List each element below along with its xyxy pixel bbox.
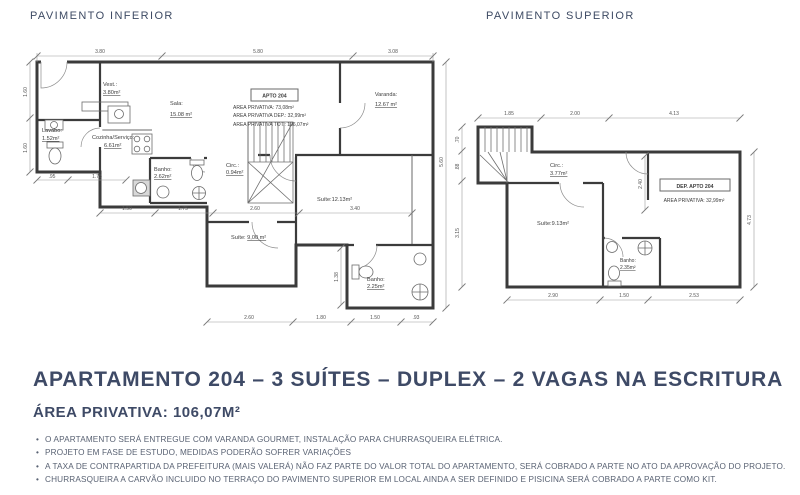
dim-label: .70 (455, 136, 461, 143)
room-label-banho1: Banho: (154, 167, 172, 173)
room-label-suite1: Suíte:12.13m² (317, 197, 352, 203)
room-label-vest: Vest.: (103, 82, 117, 88)
note-item: A TAXA DE CONTRAPARTIDA DA PREFEITURA (M… (36, 460, 786, 473)
room-area-cozinha: 6.61m² (104, 143, 122, 149)
area-privativa-dep-line: AREA PRIVATIVA DEP.: 32,99m² (233, 113, 306, 119)
superior-door-gaps (559, 183, 622, 238)
inferior-door-arcs (41, 62, 377, 269)
room-area-sala: 15.08 m² (170, 112, 192, 118)
dim-label: 1.75 (92, 174, 102, 180)
room-label-lavabo: Lavabo: (42, 128, 62, 134)
dim-label: 5.80 (253, 49, 263, 55)
area-privativa-subtitle: ÁREA PRIVATIVA: 106,07M² (33, 404, 240, 421)
dim-label: 1.50 (370, 315, 380, 321)
inferior-interior-walls (37, 62, 433, 245)
dim-label: 3.40 (350, 206, 360, 212)
floor-plans-drawing: 3.80 5.80 3.08 1.60 1.60 5.60 .95 1.75 (0, 0, 800, 348)
area-privativa-tot-line: AREA PRIVATIVA TOT.: 106,07m² (233, 122, 309, 128)
room-label-cozinha: Cozinha/Serviço: (92, 135, 135, 141)
dep-label: DEP. APTO 204 (676, 184, 713, 190)
banho2-fixtures-icon (352, 253, 428, 300)
kitchen-washer-icon (133, 180, 150, 196)
dim-label: 1.80 (316, 315, 326, 321)
dim-label: 1.50 (122, 206, 132, 212)
room-label-suite2: Suíte: 9,00 m² (231, 235, 266, 241)
dim-label: 2.00 (570, 111, 580, 117)
dim-label: 2.53 (689, 293, 699, 299)
dim-label: .95 (49, 174, 56, 180)
kitchen-stove-icon (132, 134, 152, 154)
superior-room-labels: Circ.: 3.77m² DEP. APTO 204 AREA PRIVATI… (537, 163, 730, 271)
dim-label: 2.90 (548, 293, 558, 299)
floor-plan-superior: 1.85 2.00 4.13 .70 .88 3.15 4.73 (455, 111, 758, 304)
dim-label: 1.60 (23, 143, 29, 153)
kitchen-sink-icon (108, 106, 130, 123)
superior-outer-walls (478, 127, 740, 287)
inferior-dimensions: 3.80 5.80 3.08 1.60 1.60 5.60 .95 1.75 (23, 49, 450, 326)
room-area-banho1: 2.62m² (154, 174, 172, 180)
dim-label: 4.73 (747, 215, 753, 225)
room-label-circ: Circ.: (226, 163, 239, 169)
dim-label: 5.60 (439, 157, 445, 167)
dim-label: 2.60 (250, 206, 260, 212)
room-label-banho-sup: Banho: (620, 258, 636, 264)
dim-label: 3.08 (388, 49, 398, 55)
superior-dimensions: 1.85 2.00 4.13 .70 .88 3.15 4.73 (455, 111, 758, 304)
dim-label: 4.13 (669, 111, 679, 117)
note-item: O APARTAMENTO SERÁ ENTREGUE COM VARANDA … (36, 433, 786, 446)
note-item: CHURRASQUEIRA A CARVÃO INCLUIDO NO TERRA… (36, 473, 786, 486)
room-area-lavabo: 1.52m² (42, 136, 60, 142)
superior-interior-walls (507, 152, 660, 287)
room-area-varanda: 12.67 m² (375, 102, 397, 108)
room-area-vest: 3.80m² (103, 90, 121, 96)
room-label-circ-sup: Circ.: (550, 163, 563, 169)
inferior-stairs-icon (248, 122, 293, 203)
floor-plan-sheet: PAVIMENTO INFERIOR PAVIMENTO SUPERIOR (0, 0, 800, 495)
notes-list: O APARTAMENTO SERÁ ENTREGUE COM VARANDA … (36, 433, 786, 487)
room-area-banho2: 2.25m² (367, 284, 385, 290)
room-label-suite-sup: Suíte:9.13m² (537, 221, 569, 227)
room-area-circ: 0.94m² (226, 170, 244, 176)
inferior-fixtures (45, 102, 428, 300)
room-label-sala: Sala: (170, 101, 183, 107)
dim-label: 1.50 (619, 293, 629, 299)
dim-label: 1.85 (504, 111, 514, 117)
inferior-room-labels: Vest.: 3.80m² Sala: 15.08 m² Lavabo: 1.5… (42, 82, 398, 290)
inferior-outer-walls (37, 62, 433, 308)
dim-label: 1.60 (23, 87, 29, 97)
floor-plan-inferior: 3.80 5.80 3.08 1.60 1.60 5.60 .95 1.75 (23, 49, 450, 326)
apto-label: APTO 204 (262, 94, 287, 100)
room-label-banho2: Banho: (367, 277, 385, 283)
lavabo-toilet-icon (45, 120, 63, 164)
room-label-varanda: Varanda: (375, 92, 398, 98)
dim-label: 3.15 (455, 228, 461, 238)
dim-label: .88 (455, 163, 461, 170)
dim-label: .93 (413, 315, 420, 321)
dep-area-line: AREA PRIVATIVA: 32,99m² (664, 198, 725, 204)
page-title: APARTAMENTO 204 – 3 SUÍTES – DUPLEX – 2 … (33, 368, 783, 392)
note-item: PROJETO EM FASE DE ESTUDO, MEDIDAS PODER… (36, 446, 786, 459)
dim-label: 3.80 (95, 49, 105, 55)
dim-label: 2.40 (638, 179, 644, 189)
dim-label: 1.38 (334, 272, 340, 282)
area-privativa-line: AREA PRIVATIVA: 73,08m² (233, 105, 294, 111)
room-area-circ-sup: 3.77m² (550, 171, 568, 177)
superior-stairs-icon (480, 127, 527, 183)
dim-label: 2.60 (244, 315, 254, 321)
room-area-banho-sup: 2.35m² (620, 265, 636, 271)
dim-label: 1.75 (178, 206, 188, 212)
